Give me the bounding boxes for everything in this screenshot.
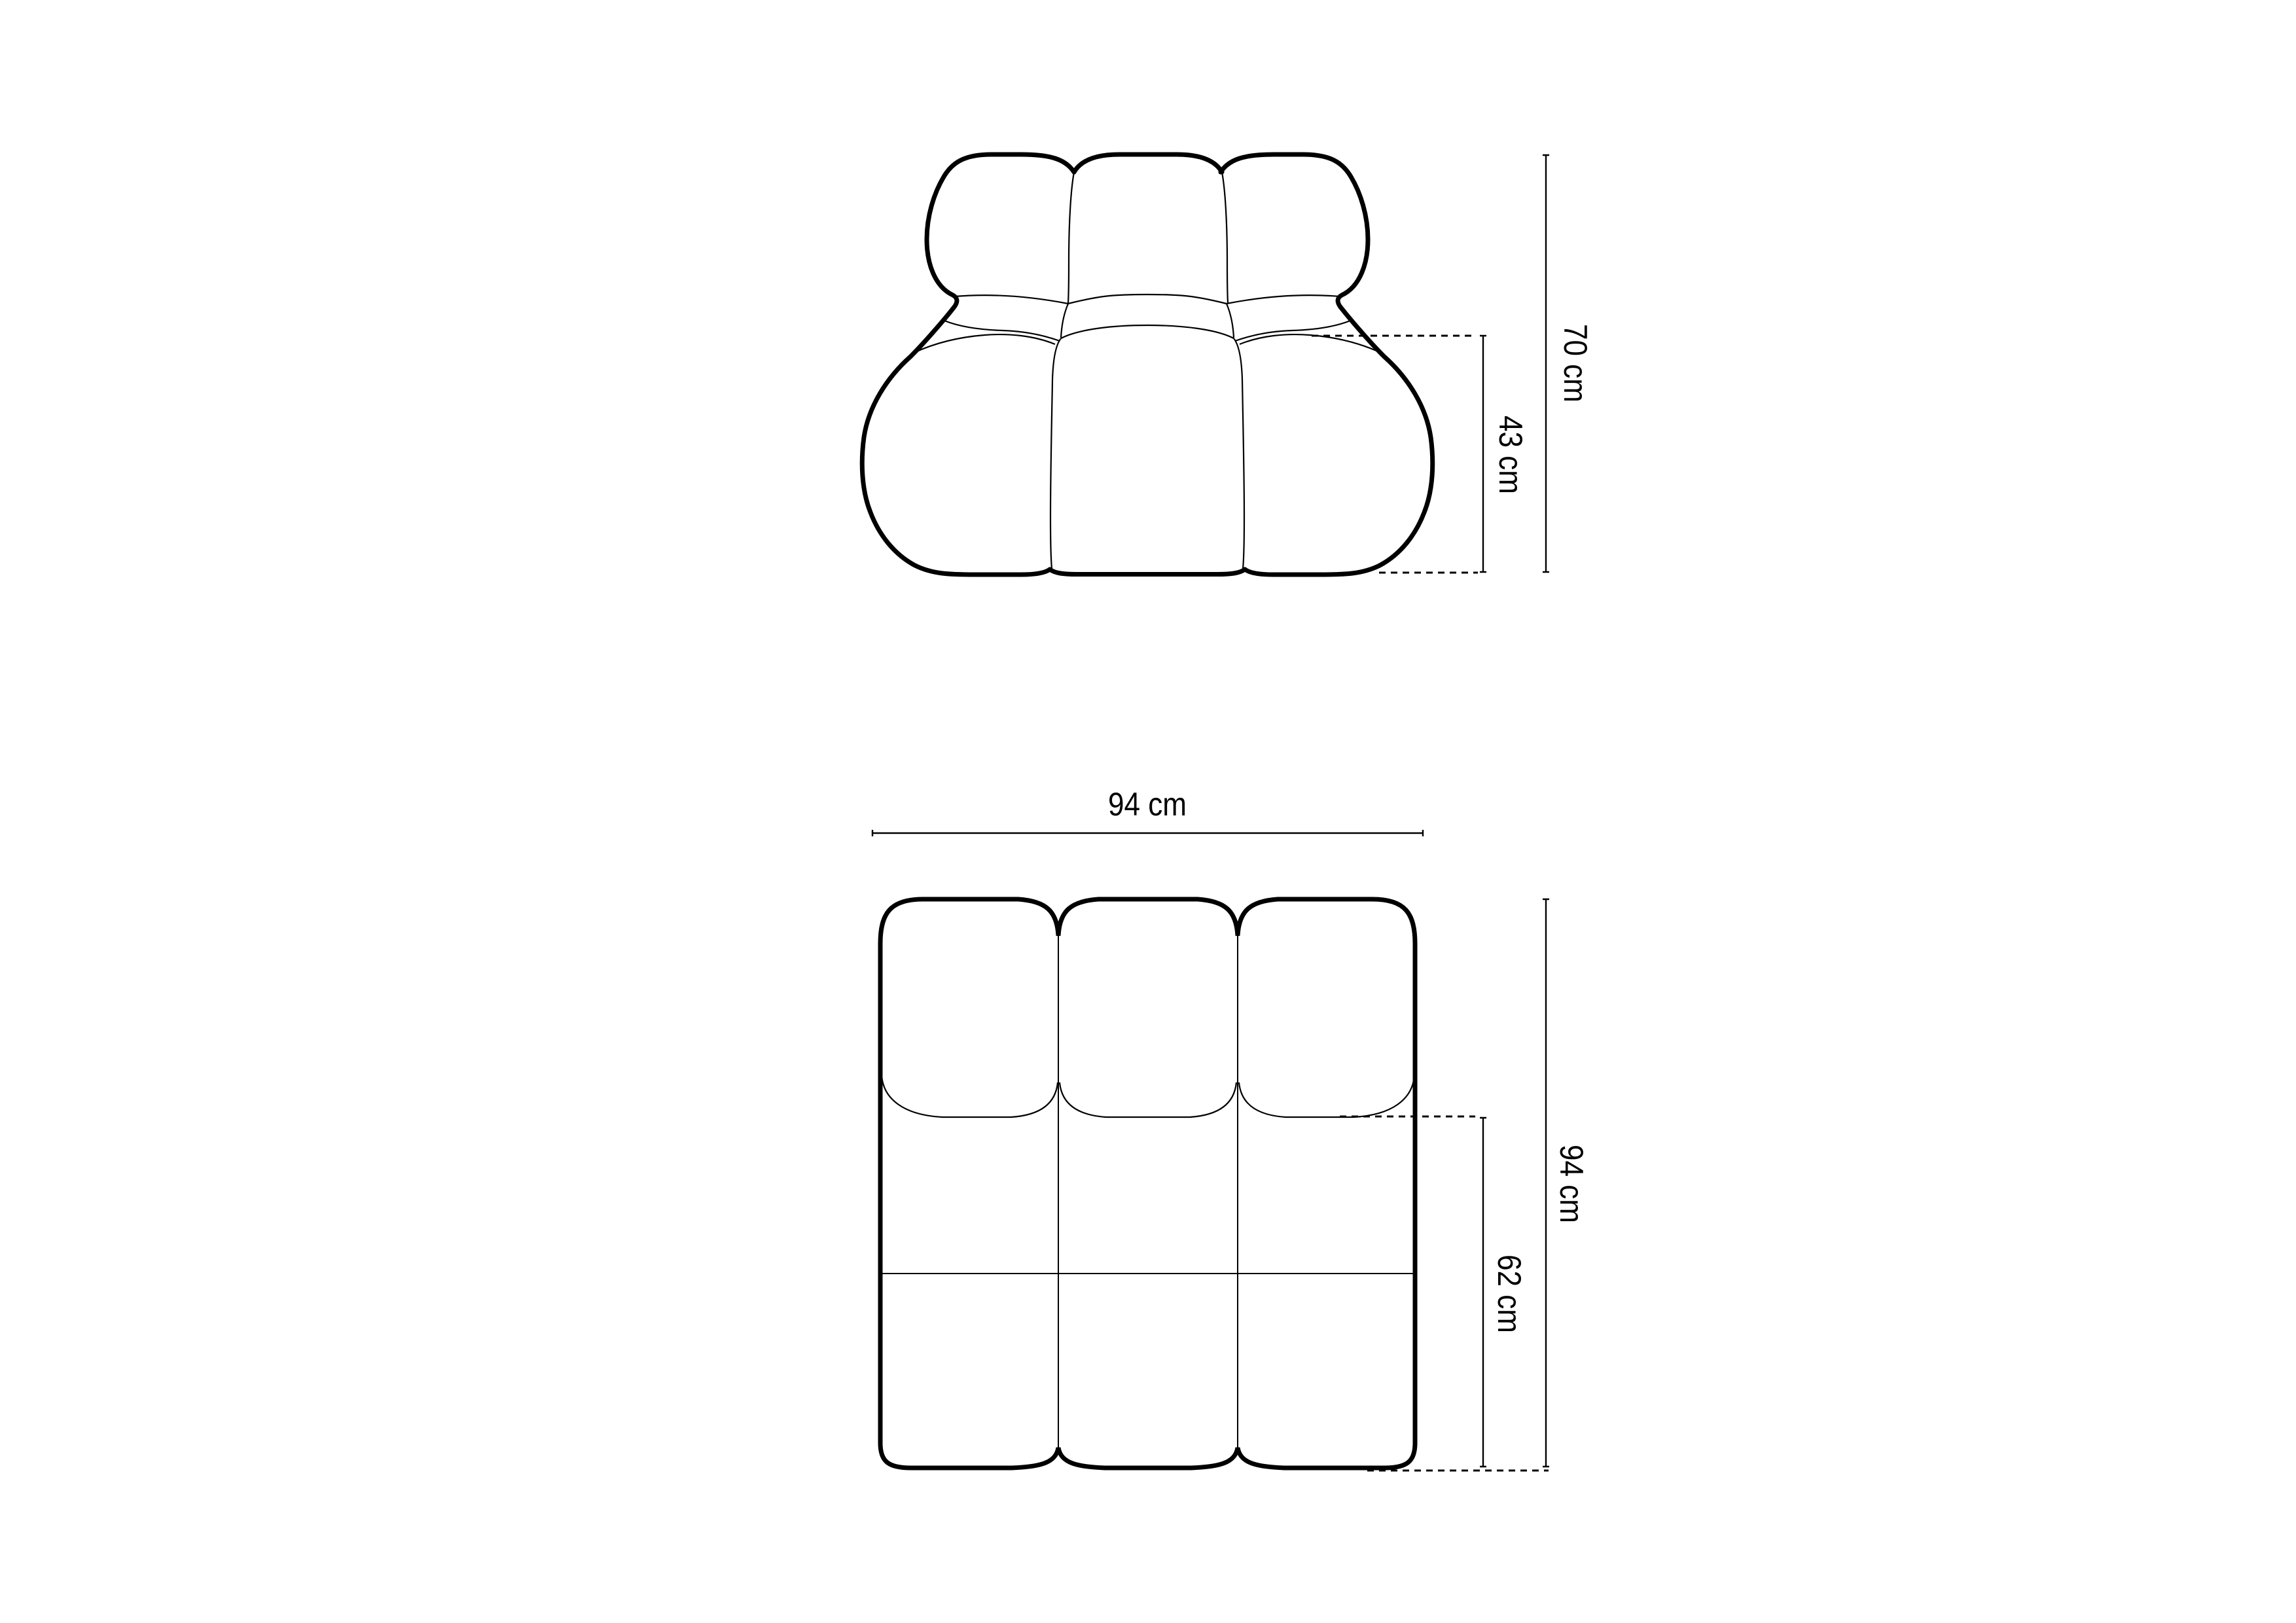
- svg-text:43 cm: 43 cm: [1492, 416, 1529, 494]
- svg-text:94 cm: 94 cm: [1553, 1145, 1590, 1223]
- svg-text:62 cm: 62 cm: [1491, 1255, 1528, 1333]
- svg-text:70 cm: 70 cm: [1557, 324, 1594, 402]
- svg-text:94 cm: 94 cm: [1108, 786, 1187, 823]
